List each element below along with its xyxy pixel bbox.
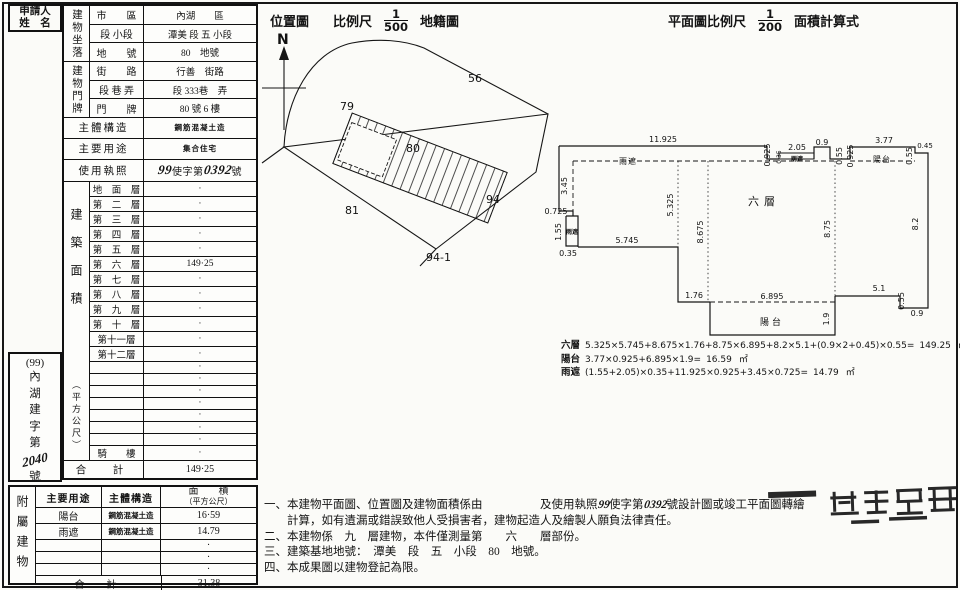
floor-row: · <box>90 422 256 434</box>
formula-unit: ㎡ <box>846 368 855 378</box>
formula-line: 雨遮(1.55+2.05)×0.35+11.925×0.925+3.45×0.7… <box>561 367 956 381</box>
row-label: 街 路 <box>90 62 144 80</box>
formula-name: 陽台 <box>561 355 580 365</box>
license-mid: 使字第 <box>172 163 204 178</box>
parcel-94-1-tick <box>420 249 436 266</box>
dimension-label: 3.45 <box>560 177 569 195</box>
dimension-label: 0.45 <box>917 142 933 150</box>
dimension-label: 0.9 <box>816 138 829 147</box>
license-row: 使用執照 99使字第0392號 <box>64 159 256 181</box>
plan-scale-denominator: 200 <box>758 21 782 33</box>
scale-fraction: 1 500 <box>384 8 408 33</box>
location-map-title: 位置圖 比例尺 1 500 地籍圖 <box>270 8 459 33</box>
annex-header-row: 主要用途 主體構造 面 積 （平方公尺） <box>36 487 256 507</box>
floor-label: 第十一層 <box>90 332 144 346</box>
annex-main: 主要用途 主體構造 面 積 （平方公尺） 陽台 鋼筋混凝土造 16·59 <box>36 487 256 583</box>
dimension-label: 雨遮 <box>619 156 637 166</box>
annex-area: · <box>161 552 256 563</box>
location-rows: 市 區 內湖 區 段 小段 潭美 段 五 小段 地 號 80 地號 <box>90 6 256 117</box>
dimension-label: 5.745 <box>616 236 639 245</box>
floor-plan-title: 平面圖比例尺 1 200 面積計算式 <box>668 8 859 33</box>
floor-row: · <box>90 386 256 398</box>
row-value: 80 號 6 樓 <box>144 99 256 117</box>
floor-row: 第十二層 · <box>90 347 256 362</box>
case-number-box: (99) 內湖建字第 2040 號 <box>8 352 62 482</box>
table-row: 段 巷 弄 段 333巷 弄 <box>90 81 256 100</box>
floor-row: 第 九 層 · <box>90 302 256 317</box>
row-value: 行善 街路 <box>144 62 256 80</box>
parcel-number: 79 <box>340 100 354 113</box>
dimension-label: 陽台 <box>873 154 891 164</box>
structure-value: 鋼筋混凝土造 <box>144 118 256 138</box>
cadastral-map-label: 地籍圖 <box>420 11 459 30</box>
annex-building-table: 附屬建物 主要用途 主體構造 面 積 （平方公尺） 陽台 鋼筋混凝土造 16·5… <box>8 485 258 585</box>
dimension-label: 雨遮 <box>791 155 803 163</box>
formula-name: 雨遮 <box>561 368 580 378</box>
location-section: 建物坐落 建物門牌 市 區 內湖 區 段 小段 潭美 段 五 小段 <box>64 6 256 117</box>
usage-label: 主要用途 <box>64 139 144 159</box>
plan-dashed-lines <box>573 161 915 302</box>
annex-row: 雨遮 鋼筋混凝土造 14.79 <box>36 523 256 539</box>
floor-area-value: · <box>144 287 256 301</box>
parcel-boundary-extension <box>262 147 284 163</box>
dimension-label: 0.55 <box>835 147 844 165</box>
row-label: 地 號 <box>90 43 144 61</box>
annex-usage <box>36 552 102 563</box>
dimension-label: 陽台 <box>760 316 784 327</box>
dimension-label: 8.75 <box>823 220 832 238</box>
floor-area-section: 建築面積 （平方公尺） 地 面 層 · 第 二 層 · 第 <box>64 181 256 461</box>
dimension-label: 0.9 <box>911 309 924 318</box>
floor-label <box>90 386 144 397</box>
dimension-label: 2.05 <box>788 143 806 152</box>
case-suffix: 號 <box>29 468 41 484</box>
dimension-label: 0.725 <box>545 207 568 216</box>
floor-area-value: · <box>144 362 256 373</box>
dimension-label: 3.77 <box>875 136 893 145</box>
floor-row: 第 二 層 · <box>90 197 256 212</box>
floor-label: 第 二 層 <box>90 197 144 211</box>
north-arrow-icon <box>262 46 306 130</box>
floor-row: 第 四 層 · <box>90 227 256 242</box>
case-number-handwritten: 2040 <box>22 448 49 470</box>
table-row: 段 小段 潭美 段 五 小段 <box>90 25 256 44</box>
annex-structure: 鋼筋混凝土造 <box>102 508 161 523</box>
area-formulas: 六層5.325×5.745+8.675×1.76+8.75×6.895+8.2×… <box>561 340 956 381</box>
floor-row: 第 七 層 · <box>90 272 256 287</box>
annex-total-value: 31.38 <box>162 576 256 590</box>
row-label: 段 巷 弄 <box>90 81 144 99</box>
row-label: 門 牌 <box>90 99 144 117</box>
floor-row: 第十一層 · <box>90 332 256 347</box>
floor-label <box>90 434 144 445</box>
floor-label: 第 十 層 <box>90 317 144 331</box>
survey-document-page: 申請人 姓 名 建物坐落 建物門牌 市 區 內湖 區 段 小段 潭美 段 <box>0 0 960 590</box>
total-value: 149·25 <box>144 461 256 478</box>
floor-label <box>90 410 144 421</box>
note-4: 四、本成果圖以建物登記為限。 <box>264 561 956 577</box>
location-map: N795680819494-1 <box>262 32 548 266</box>
table-row: 地 號 80 地號 <box>90 43 256 62</box>
dimension-label: 0.35 <box>559 249 577 258</box>
applicant-name-box: 申請人 姓 名 <box>8 4 62 32</box>
annex-header-area-line2: （平方公尺） <box>185 497 233 507</box>
row-label: 段 小段 <box>90 25 144 43</box>
parcel-number: 94 <box>486 193 500 206</box>
plan-scale-fraction: 1 200 <box>758 8 782 33</box>
floor-area-value: · <box>144 272 256 286</box>
license-number: 0392 <box>202 162 232 178</box>
formula-line: 六層5.325×5.745+8.675×1.76+8.75×6.895+8.2×… <box>561 340 956 354</box>
annex-structure <box>102 540 161 551</box>
floor-label <box>90 398 144 409</box>
floor-area-value: · <box>144 446 256 460</box>
annex-row: 陽台 鋼筋混凝土造 16·59 <box>36 507 256 523</box>
parcel-boundary-south <box>284 114 548 249</box>
floor-label: 第 四 層 <box>90 227 144 241</box>
case-text: 內湖建字第 <box>28 369 42 452</box>
floor-area-value: · <box>144 398 256 409</box>
parcel-number-labels: N795680819494-1 <box>277 32 500 264</box>
dimension-label: 8.675 <box>696 221 705 244</box>
floor-rows: 地 面 層 · 第 二 層 · 第 三 層 · 第 四 層 <box>90 182 256 461</box>
annex-area: · <box>161 564 256 575</box>
floor-row: 地 面 層 · <box>90 182 256 197</box>
floor-area-value: · <box>144 347 256 361</box>
floor-label <box>90 422 144 433</box>
floor-row: 騎 樓 · <box>90 446 256 460</box>
license-label: 使用執照 <box>64 160 144 181</box>
dimension-label: 0.925 <box>763 144 772 167</box>
annex-rows: 陽台 鋼筋混凝土造 16·59 雨遮 鋼筋混凝土造 14.79 · <box>36 507 256 575</box>
applicant-label-line1: 申請人 <box>19 6 51 18</box>
floor-area-value: · <box>144 410 256 421</box>
floor-area-value: · <box>144 422 256 433</box>
annex-row: · <box>36 551 256 563</box>
floor-row: · <box>90 362 256 374</box>
dimension-labels: 11.925雨遮3.450.7251.55雨遮0.355.7455.3258.6… <box>545 135 933 327</box>
area-unit-label: （平方公尺） <box>70 380 83 460</box>
floor-label: 第 五 層 <box>90 242 144 256</box>
formula-expression: 5.325×5.745+8.675×1.76+8.75×6.895+8.2×5.… <box>585 341 914 351</box>
annex-total-row: 合 計 31.38 <box>36 575 256 590</box>
annex-side-label: 附屬建物 <box>10 487 36 583</box>
floor-row: · <box>90 410 256 422</box>
parcel-number: 81 <box>345 204 359 217</box>
note-3: 三、建築基地地號： 潭美 段 五 小段 80 地號。 <box>264 545 956 561</box>
scale-label: 比例尺 <box>333 11 372 30</box>
dimension-label: 1.76 <box>685 291 703 300</box>
row-value: 潭美 段 五 小段 <box>144 25 256 43</box>
table-row: 門 牌 80 號 6 樓 <box>90 99 256 117</box>
floor-row: · <box>90 374 256 386</box>
annex-usage: 陽台 <box>36 508 102 523</box>
applicant-label-line2: 姓 名 <box>19 18 51 30</box>
floor-area-value: · <box>144 332 256 346</box>
annex-structure <box>102 552 161 563</box>
parcel-number: 56 <box>468 72 482 85</box>
annex-header-area: 面 積 （平方公尺） <box>161 487 256 507</box>
plan-solid-outline <box>559 146 928 335</box>
license-suffix: 號 <box>232 163 243 178</box>
note-1-continued: 計算，如有遺漏或錯誤致他人受損害者，建物起造人及繪製人願負法律責任。 <box>264 514 956 530</box>
formula-expression: 3.77×0.925+6.895×1.9= <box>585 355 701 365</box>
note-1-pre: 一、本建物平面圖、位置圖及建物面積係由 及使用執照 <box>264 499 598 511</box>
formula-line: 陽台3.77×0.925+6.895×1.9=16.59㎡ <box>561 354 956 368</box>
floor-label: 騎 樓 <box>90 446 144 460</box>
floor-plan: 11.925雨遮3.450.7251.55雨遮0.355.7455.3258.6… <box>545 135 933 335</box>
floor-label: 第 九 層 <box>90 302 144 316</box>
annex-header-structure: 主體構造 <box>102 487 161 507</box>
floor-area-value: · <box>144 302 256 316</box>
floor-label <box>90 374 144 385</box>
plan-dotted-dividers <box>678 161 835 302</box>
note-1: 一、本建物平面圖、位置圖及建物面積係由 及使用執照99使字第0392號設計圖或竣… <box>264 498 956 514</box>
floor-label: 第 三 層 <box>90 212 144 226</box>
building-footprint <box>333 113 507 223</box>
formula-result: 149.25 <box>919 341 951 351</box>
floor-label <box>90 362 144 373</box>
total-label: 合 計 <box>64 461 144 478</box>
annex-structure <box>102 564 161 575</box>
annex-usage <box>36 540 102 551</box>
annex-header-usage: 主要用途 <box>36 487 102 507</box>
dimension-label: 11.925 <box>649 135 677 144</box>
structure-row: 主體構造 鋼筋混凝土造 <box>64 117 256 138</box>
floor-area-value: · <box>144 212 256 226</box>
floor-row: 第 三 層 · <box>90 212 256 227</box>
parcel-boundaries <box>262 40 548 266</box>
license-year: 99 <box>157 162 173 178</box>
floor-row: 第 十 層 · <box>90 317 256 332</box>
floor-area-value: · <box>144 197 256 211</box>
annex-area: 16·59 <box>161 508 256 523</box>
row-value: 段 333巷 弄 <box>144 81 256 99</box>
note-2: 二、本建物係 九 層建物，本件僅測量第 六 層部份。 <box>264 530 956 546</box>
area-label: 建築面積 <box>68 182 85 381</box>
annex-total-label: 合 計 <box>36 576 162 590</box>
parcel-number: N <box>277 32 289 48</box>
floor-label: 第十二層 <box>90 347 144 361</box>
formula-name: 六層 <box>561 341 580 351</box>
usage-value: 集合住宅 <box>144 139 256 159</box>
location-map-label: 位置圖 <box>270 11 309 30</box>
annex-header-area-line1: 面 積 <box>189 487 229 497</box>
case-year: (99) <box>26 357 44 369</box>
building-location-group-label: 建物坐落 <box>64 6 89 62</box>
note-1-number: 0392 <box>642 498 667 514</box>
parcel-number: 80 <box>406 142 420 155</box>
dimension-label: 6.895 <box>761 292 784 301</box>
annex-area: · <box>161 540 256 551</box>
annex-usage <box>36 564 102 575</box>
annex-row: · <box>36 539 256 551</box>
dimension-label: 5.1 <box>873 284 886 293</box>
formula-expression: (1.55+2.05)×0.35+11.925×0.925+3.45×0.725… <box>585 368 808 378</box>
dimension-label: 0.55 <box>905 147 914 165</box>
row-value: 內湖 區 <box>144 6 256 24</box>
dimension-label: 0.35 <box>776 150 783 164</box>
floor-area-value: · <box>144 242 256 256</box>
usage-row: 主要用途 集合住宅 <box>64 138 256 159</box>
table-row: 市 區 內湖 區 <box>90 6 256 25</box>
floor-label: 第 八 層 <box>90 287 144 301</box>
annex-row: · <box>36 563 256 575</box>
floor-label: 第 六 層 <box>90 257 144 271</box>
area-calculation-label: 面積計算式 <box>794 11 859 30</box>
floor-plan-scale-label: 平面圖比例尺 <box>668 11 746 30</box>
floor-row: · <box>90 398 256 410</box>
dimension-label: 0.925 <box>846 145 855 168</box>
row-label: 市 區 <box>90 6 144 24</box>
total-row: 合 計 149·25 <box>64 460 256 478</box>
dimension-label: 5.325 <box>666 194 675 217</box>
formula-result: 14.79 <box>813 368 839 378</box>
parcel-number: 94-1 <box>426 251 451 264</box>
formula-unit: ㎡ <box>739 355 748 365</box>
structure-label: 主體構造 <box>64 118 144 138</box>
floor-row: 第 六 層 149·25 <box>90 257 256 272</box>
table-row: 街 路 行善 街路 <box>90 62 256 81</box>
floor-area-value: · <box>144 227 256 241</box>
building-info-table: 建物坐落 建物門牌 市 區 內湖 區 段 小段 潭美 段 五 小段 <box>62 4 258 480</box>
note-1-year: 99 <box>596 498 610 514</box>
dimension-label: 1.55 <box>554 223 563 241</box>
dimension-label: 8.2 <box>911 218 920 231</box>
floor-area-value: 149·25 <box>144 257 256 271</box>
dimension-label: 雨遮 <box>566 228 578 236</box>
floor-area-value: · <box>144 182 256 196</box>
building-door-group-label: 建物門牌 <box>64 62 89 117</box>
dimension-label: 0.55 <box>897 292 906 310</box>
dimension-label: 1.9 <box>822 313 831 326</box>
note-1-end: 號設計圖或竣工平面圖轉繪 <box>667 499 805 511</box>
annex-usage: 雨遮 <box>36 524 102 539</box>
note-1-mid: 使字第 <box>609 499 644 511</box>
area-label-column: 建築面積 （平方公尺） <box>64 182 90 461</box>
formula-result: 16.59 <box>706 355 732 365</box>
license-value: 99使字第0392號 <box>144 160 256 181</box>
floor-label: 地 面 層 <box>90 182 144 196</box>
annex-structure: 鋼筋混凝土造 <box>102 524 161 539</box>
group-label-column: 建物坐落 建物門牌 <box>64 6 90 117</box>
floor-row: 第 八 層 · <box>90 287 256 302</box>
floor-row: · <box>90 434 256 446</box>
parcel-boundary-north <box>284 40 548 147</box>
dimension-label: 六層 <box>748 195 780 208</box>
floor-area-value: · <box>144 374 256 385</box>
floor-area-value: · <box>144 317 256 331</box>
floor-row: 第 五 層 · <box>90 242 256 257</box>
floor-area-value: · <box>144 386 256 397</box>
floor-area-value: · <box>144 434 256 445</box>
annex-area: 14.79 <box>161 524 256 539</box>
row-value: 80 地號 <box>144 43 256 61</box>
notes-block: 一、本建物平面圖、位置圖及建物面積係由 及使用執照99使字第0392號設計圖或竣… <box>264 498 956 577</box>
floor-label: 第 七 層 <box>90 272 144 286</box>
scale-denominator: 500 <box>384 21 408 33</box>
